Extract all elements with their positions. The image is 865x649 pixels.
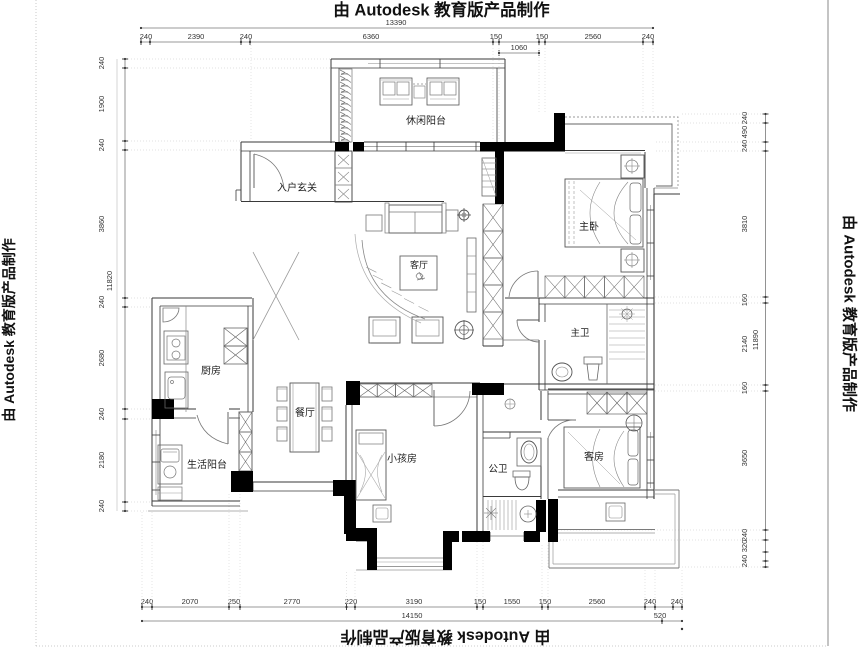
svg-text:240: 240 <box>97 408 106 421</box>
svg-text:2560: 2560 <box>585 32 602 41</box>
svg-text:客厅: 客厅 <box>410 259 428 270</box>
svg-text:2180: 2180 <box>97 452 106 469</box>
svg-text:240: 240 <box>140 32 153 41</box>
svg-text:240: 240 <box>141 597 154 606</box>
svg-text:520: 520 <box>654 611 667 620</box>
svg-text:240: 240 <box>740 555 749 568</box>
svg-text:公卫: 公卫 <box>488 464 508 475</box>
svg-text:2070: 2070 <box>182 597 199 606</box>
svg-text:240: 240 <box>97 500 106 513</box>
svg-text:厨房: 厨房 <box>201 364 221 377</box>
svg-text:14150: 14150 <box>402 611 423 620</box>
svg-text:250: 250 <box>228 597 241 606</box>
svg-text:11890: 11890 <box>751 330 760 350</box>
svg-text:160: 160 <box>740 382 749 395</box>
svg-text:餐厅: 餐厅 <box>295 406 315 419</box>
svg-text:150: 150 <box>539 597 552 606</box>
svg-text:小孩房: 小孩房 <box>387 452 417 465</box>
svg-text:由 Autodesk 教育版产品制作: 由 Autodesk 教育版产品制作 <box>333 0 550 20</box>
svg-text:由 Autodesk 教育版产品制作: 由 Autodesk 教育版产品制作 <box>841 215 859 412</box>
svg-text:220: 220 <box>345 597 358 606</box>
svg-text:3810: 3810 <box>740 216 749 233</box>
svg-text:240: 240 <box>740 112 749 125</box>
svg-text:490: 490 <box>740 126 749 139</box>
svg-text:2560: 2560 <box>589 597 606 606</box>
svg-text:240: 240 <box>642 32 655 41</box>
svg-text:客房: 客房 <box>584 450 604 463</box>
svg-text:240: 240 <box>97 57 106 70</box>
svg-text:150: 150 <box>536 32 549 41</box>
svg-text:主卧: 主卧 <box>579 220 599 233</box>
svg-text:240: 240 <box>97 296 106 309</box>
svg-text:1550: 1550 <box>504 597 521 606</box>
svg-text:160: 160 <box>740 294 749 307</box>
svg-text:150: 150 <box>474 597 487 606</box>
svg-text:2770: 2770 <box>284 597 301 606</box>
svg-text:主卫: 主卫 <box>570 327 590 339</box>
svg-text:2140: 2140 <box>740 336 749 353</box>
svg-text:生活阳台: 生活阳台 <box>187 458 227 471</box>
svg-text:2390: 2390 <box>188 32 205 41</box>
svg-text:11820: 11820 <box>105 271 114 291</box>
svg-text:240: 240 <box>97 139 106 152</box>
svg-text:240: 240 <box>740 140 749 153</box>
svg-text:入户玄关: 入户玄关 <box>277 181 317 194</box>
svg-text:由 Autodesk 教育版产品制作: 由 Autodesk 教育版产品制作 <box>1 238 17 422</box>
svg-text:由 Autodesk 教育版产品制作: 由 Autodesk 教育版产品制作 <box>341 628 551 647</box>
svg-text:3650: 3650 <box>740 450 749 467</box>
svg-text:1060: 1060 <box>511 43 528 52</box>
svg-text:2680: 2680 <box>97 350 106 367</box>
svg-text:150: 150 <box>490 32 503 41</box>
svg-text:3860: 3860 <box>97 216 106 233</box>
svg-text:240: 240 <box>740 529 749 542</box>
svg-text:1900: 1900 <box>97 96 106 113</box>
svg-text:13390: 13390 <box>386 18 407 27</box>
svg-text:320: 320 <box>740 540 749 553</box>
svg-text:休闲阳台: 休闲阳台 <box>406 114 446 127</box>
svg-text:240: 240 <box>671 597 684 606</box>
svg-text:240: 240 <box>240 32 253 41</box>
svg-text:240: 240 <box>644 597 657 606</box>
svg-text:3190: 3190 <box>406 597 423 606</box>
svg-text:6360: 6360 <box>363 32 380 41</box>
